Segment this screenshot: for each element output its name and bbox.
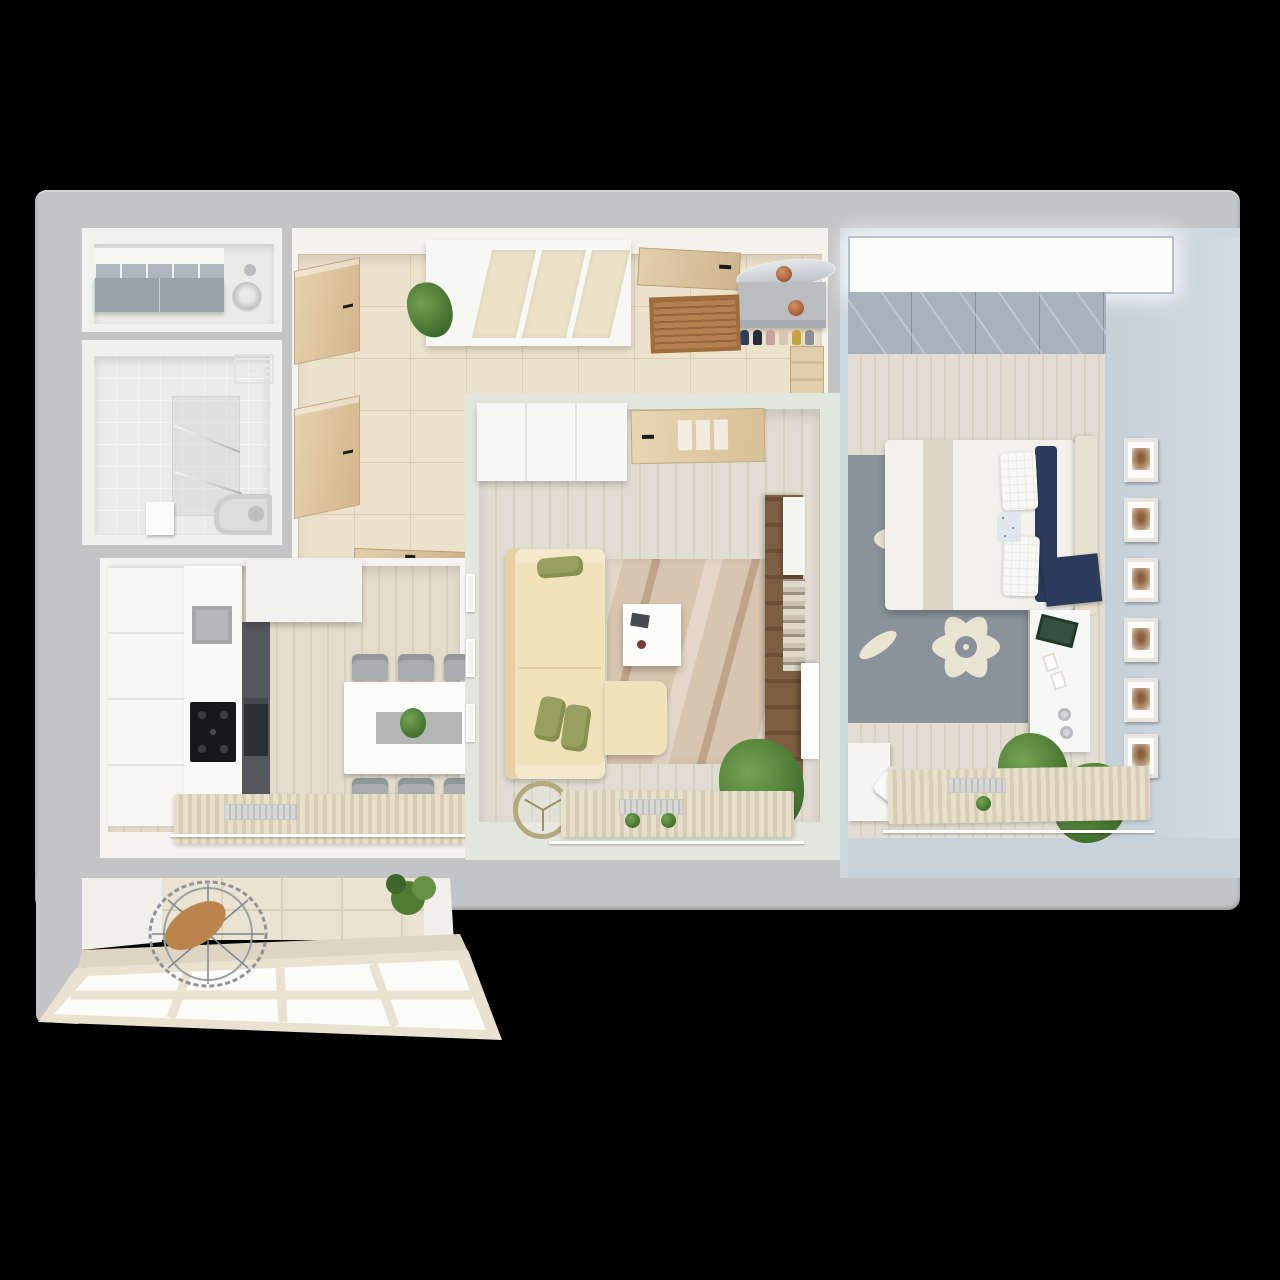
sliding-closet-top: [848, 292, 1106, 354]
door-handle: [719, 265, 731, 270]
wall-frame: [466, 704, 475, 742]
wardrobe-light-band: [848, 236, 1174, 294]
photo-frame-small: [1042, 652, 1060, 672]
bathroom-door: [294, 395, 360, 519]
curtain-rail: [170, 834, 470, 837]
room-bedroom: [840, 228, 1240, 878]
kitchen-sink: [192, 606, 232, 644]
gas-hob: [190, 702, 236, 762]
kitchen-radiator: [224, 804, 298, 820]
dining-chair: [398, 654, 434, 680]
door-handle: [343, 449, 353, 454]
room-storage: [82, 228, 282, 332]
magazine-shelf: [783, 579, 805, 671]
shoes-row: [740, 330, 828, 346]
storage-cabinet-front: [94, 278, 224, 312]
picture-frame: [1124, 678, 1158, 722]
cubby-shelf: [94, 264, 224, 278]
vase: [776, 266, 792, 282]
small-plant: [625, 813, 640, 828]
plant-centerpiece: [400, 708, 426, 738]
countertop: [184, 566, 242, 804]
navy-throw: [1042, 553, 1103, 607]
room-balcony: [30, 872, 510, 1057]
magazine: [1035, 614, 1078, 648]
upper-cabinets: [246, 558, 362, 622]
picture-frame: [1124, 558, 1158, 602]
entry-door: [637, 247, 741, 290]
bedroom-bottom-wall: [848, 838, 1240, 878]
picture-frame: [1124, 618, 1158, 662]
corner-sofa: [505, 549, 605, 779]
small-plant: [661, 813, 676, 828]
washing-machine: [232, 282, 262, 312]
towel-rail: [175, 425, 241, 453]
sliding-wardrobe: [426, 240, 631, 346]
tub-drain: [248, 506, 264, 522]
tv-cabinet: [783, 497, 805, 575]
bedroom-radiator: [948, 778, 1006, 793]
doormat: [649, 294, 741, 353]
dining-chair: [352, 654, 388, 680]
towel-rail: [175, 471, 242, 495]
photo-frame-small: [1050, 670, 1068, 690]
room-kitchen: [100, 558, 470, 858]
cup: [1060, 726, 1073, 739]
wire-basket-shelf: [234, 354, 274, 384]
oven: [244, 698, 268, 756]
vase: [788, 300, 804, 316]
white-closet: [477, 403, 627, 481]
tv: [801, 663, 819, 759]
patterned-pillow: [997, 512, 1021, 542]
white-pillow: [1000, 451, 1039, 511]
bathroom-sink: [146, 502, 174, 535]
apartment-slab: [35, 190, 1240, 910]
magazine: [630, 613, 650, 629]
cabinet-column: [108, 566, 184, 826]
room-bathroom: [82, 340, 282, 545]
cup: [637, 640, 646, 649]
folded-blanket: [923, 440, 953, 610]
curtain-rail: [549, 841, 804, 844]
shelf-item: [244, 264, 256, 276]
scene-canvas: [0, 0, 1280, 1280]
bedroom-curtains: [888, 766, 1151, 825]
coffee-table: [623, 604, 681, 666]
dresser-desk: [1030, 610, 1090, 752]
bathtub: [214, 494, 272, 535]
room-living: [465, 393, 840, 860]
white-pillow: [1002, 535, 1040, 596]
shoe-console: [738, 282, 826, 328]
small-plant: [976, 796, 991, 811]
storage-door: [294, 257, 360, 365]
picture-frame: [1124, 498, 1158, 542]
storage-cabinet: [94, 248, 224, 264]
curtain-rail: [883, 830, 1155, 833]
sofa-chaise: [605, 681, 667, 755]
living-door: [631, 408, 766, 464]
door-handle: [343, 303, 353, 308]
headrest-pillow: [536, 555, 584, 579]
dining-table: [344, 682, 478, 774]
wall-frame: [466, 574, 475, 612]
picture-frame: [1124, 438, 1158, 482]
wall-frame: [466, 639, 475, 677]
cup: [1058, 708, 1071, 721]
door-handle: [642, 435, 654, 439]
